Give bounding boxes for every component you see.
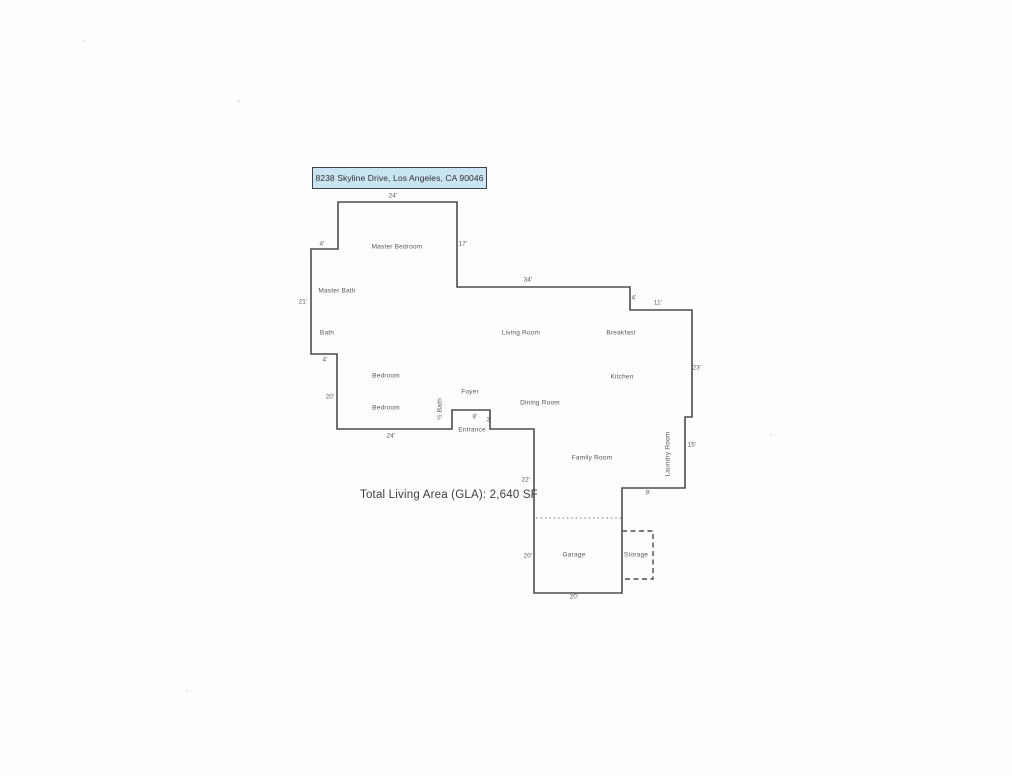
dimension-master-bedroom-width: 24' [389, 193, 398, 200]
dimension-east-wall-height: 23' [693, 365, 702, 372]
room-label-family-room: Family Room [572, 455, 612, 462]
dimension-living-room-top-width: 34' [524, 277, 533, 284]
room-label-bedroom-upper: Bedroom [372, 373, 400, 380]
room-label-dining-room: Dining Room [520, 400, 560, 407]
dimension-garage-wall-height: 20' [524, 553, 533, 560]
address-title-box: 8238 Skyline Drive, Los Angeles, CA 9004… [312, 167, 487, 189]
dimension-master-bedroom-left-offset: 4' [319, 241, 324, 248]
room-label-half-bath: ½ Bath [437, 398, 444, 420]
room-label-breakfast: Breakfast [606, 330, 635, 337]
room-label-foyer: Foyer [461, 389, 479, 396]
dimension-family-room-bottom-width: 9' [645, 490, 650, 497]
room-label-bath: Bath [320, 330, 334, 337]
dimension-master-bedroom-right-height: 17' [459, 241, 468, 248]
room-label-bedroom-lower: Bedroom [372, 405, 400, 412]
exterior-wall-outline [311, 202, 692, 593]
dimension-breakfast-top-width: 11' [654, 300, 662, 307]
address-text: 8238 Skyline Drive, Los Angeles, CA 9004… [315, 173, 483, 183]
total-living-area-text: Total Living Area (GLA): 2,640 SF [360, 489, 538, 501]
room-label-laundry-room: Laundry Room [665, 431, 672, 476]
dimension-bedroom-wall-height: 20' [326, 394, 335, 401]
room-label-master-bedroom: Master Bedroom [372, 244, 423, 251]
dimension-breakfast-step-height: 4' [631, 295, 636, 302]
room-label-master-bath: Master Bath [318, 288, 355, 295]
dimension-bedroom-bottom-width: 24' [387, 433, 396, 440]
room-label-storage: Storage [624, 552, 648, 559]
dimension-entrance-depth: 3' [486, 417, 491, 424]
dimension-entrance-width: 8' [472, 414, 477, 421]
floor-plan-drawing [0, 0, 1012, 776]
floor-plan-page: 8238 Skyline Drive, Los Angeles, CA 9004… [0, 0, 1012, 776]
dimension-west-wall-height: 21' [299, 299, 308, 306]
room-label-kitchen: Kitchen [610, 374, 633, 381]
room-label-entrance: Entrance [458, 427, 486, 434]
dimension-laundry-wall-height: 15' [688, 442, 697, 449]
dimension-garage-bottom-width: 20' [570, 594, 579, 601]
room-label-living-room: Living Room [502, 330, 540, 337]
dimension-bath-bottom-offset: 4' [322, 357, 327, 364]
dimension-family-room-wall-height: 22' [522, 477, 531, 484]
room-label-garage: Garage [563, 552, 586, 559]
